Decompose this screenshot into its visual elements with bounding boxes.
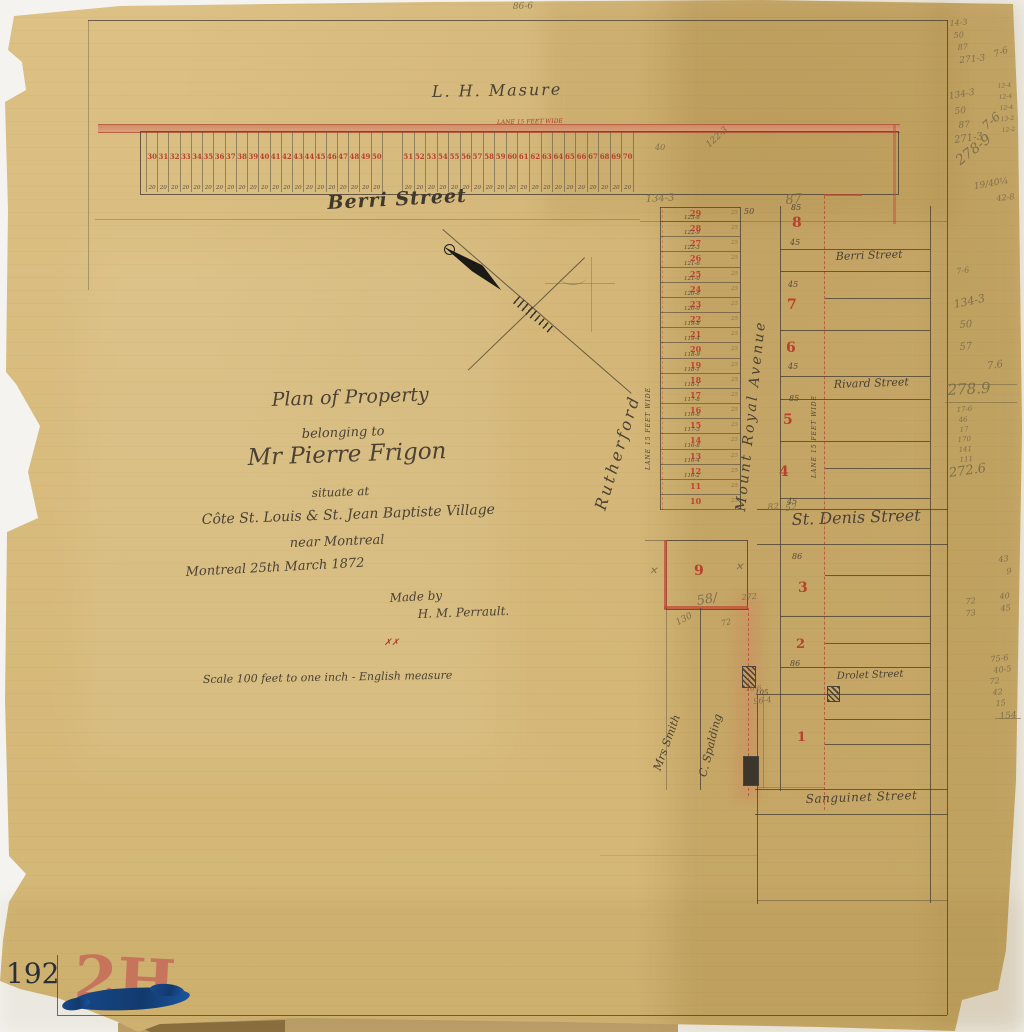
strip-lot-number: 45 [316, 152, 326, 161]
dim-86: 86 [790, 660, 800, 668]
strip-lot-width: 20 [530, 185, 541, 191]
block-line [825, 575, 930, 576]
column-lot-depth: 25 [731, 422, 738, 428]
strip-lot-63: 6320 [542, 132, 554, 192]
column-lot-dimension: 116-8 [684, 443, 700, 449]
margin-pencil-sum: 154 [999, 712, 1017, 722]
column-lot-12: 12116-225 [660, 465, 740, 480]
strip-lot-51: 5120 [402, 132, 415, 192]
strip-lot-number: 48 [349, 152, 359, 161]
strip-lot-width: 20 [316, 185, 326, 191]
strip-lot-58: 5820 [484, 132, 496, 192]
column-lot-19: 19118-125 [660, 359, 740, 374]
block-line [780, 330, 930, 331]
strip-lot-43: 4320 [293, 132, 304, 192]
block-line [780, 441, 930, 442]
title-line-1: Plan of Property [271, 386, 429, 410]
strip-lot-32: 3220 [169, 132, 180, 192]
pencil-82: 82 [767, 503, 779, 513]
pencil-16-6: 16-6 [746, 685, 762, 693]
strip-lot-56: 5620 [461, 132, 473, 192]
lot-3: 3 [798, 581, 808, 595]
strip-lot-37: 3720 [226, 132, 237, 192]
column-lot-dimension: 123-6 [684, 215, 700, 221]
pencil-272: 272 [741, 593, 757, 602]
strip-lot-width: 20 [259, 185, 269, 191]
strip-lot-number: 68 [599, 152, 610, 161]
margin-pencil: 42 [992, 688, 1003, 697]
margin-pencil: 57 [959, 342, 973, 353]
strip-lot-66: 6620 [576, 132, 588, 192]
strip-lot-number: 47 [338, 152, 348, 161]
dim-86: 86 [792, 553, 802, 561]
strip-lot-width: 20 [588, 185, 599, 191]
drolet-north-line [780, 667, 930, 668]
column-lot-26: 26121-625 [660, 252, 740, 267]
margin-pencil-sum: 278.9 [947, 381, 991, 398]
column-lot-11: 1125 [660, 480, 740, 495]
column-lot-dimension: 118-1 [684, 382, 700, 388]
column-lot-27: 27122-325 [660, 237, 740, 252]
column-lot-dimension: 122-3 [684, 245, 700, 251]
strip-lot-width: 20 [507, 185, 518, 191]
strip-lot-42: 4220 [282, 132, 293, 192]
strip-lot-number: 37 [226, 152, 236, 161]
margin-pencil: 170 [957, 436, 971, 444]
strip-lot-38: 3820 [237, 132, 248, 192]
column-lot-dimension: 119-8 [684, 321, 700, 327]
strip-lot-number: 70 [622, 152, 633, 161]
strip-lot-number: 34 [192, 152, 202, 161]
strip-lot-number: 43 [293, 152, 303, 161]
strip-lot-31: 3120 [158, 132, 169, 192]
column-lot-dimension: 122-9 [684, 230, 700, 236]
strip-lot-width: 20 [147, 185, 157, 191]
strip-lot-width: 20 [214, 185, 224, 191]
strip-lot-65: 6520 [565, 132, 577, 192]
frame-right [947, 20, 948, 1015]
strip-lot-69: 6920 [611, 132, 623, 192]
margin-pencil: 12-4 [998, 94, 1012, 101]
frame-bottom [58, 1015, 947, 1016]
column-lots: 29123-62528122-92527122-32526121-6252512… [660, 207, 740, 510]
dim-45: 45 [788, 363, 798, 371]
column-lot-18: 18118-125 [660, 374, 740, 389]
column-lot-25: 25121-025 [660, 268, 740, 283]
strip-lot-number: 67 [588, 152, 599, 161]
strip-lot-number: 46 [327, 152, 337, 161]
strip-lot-width: 20 [622, 185, 633, 191]
strip-lot-number: 44 [304, 152, 314, 161]
column-lot-depth: 25 [731, 271, 738, 277]
column-lot-10: 1025 [660, 495, 740, 510]
made-by-label: Made by [389, 589, 442, 604]
strip-lot-44: 4420 [304, 132, 315, 192]
sanguinet-south-line [755, 814, 948, 815]
column-lot-dimension: 118-1 [684, 367, 700, 373]
strip-lot-width: 20 [169, 185, 179, 191]
column-lot-dimension: 116-4 [684, 458, 700, 464]
lot1-west-line [757, 694, 758, 904]
strip-lot-60: 6020 [507, 132, 519, 192]
strip-lot-width: 20 [158, 185, 168, 191]
pencil-87-large: 87 [785, 193, 803, 207]
strip-lot-40: 4020 [259, 132, 270, 192]
strip-lot-number: 65 [565, 152, 576, 161]
lot9-red-left [664, 540, 667, 610]
pencil-52: 52 [785, 504, 797, 514]
title-line-6: near Montreal [290, 534, 385, 550]
lot-1: 1 [797, 731, 806, 744]
scanned-map-sheet: 3020312032203320342035203620372038203920… [0, 0, 1024, 1032]
strip-lot-36: 3620 [214, 132, 225, 192]
strip-lot-70: 7020 [622, 132, 634, 192]
column-lot-15: 15117-325 [660, 419, 740, 434]
column-lot-28: 28122-925 [660, 222, 740, 237]
red-check-marks: ✗✗ [384, 639, 399, 648]
strip-lot-width: 20 [565, 185, 576, 191]
strip-lot-width: 20 [226, 185, 236, 191]
margin-pencil: 43 [998, 555, 1009, 564]
block-line [825, 468, 930, 469]
pencil-40: 40 [655, 144, 665, 152]
lot-7: 7 [787, 298, 797, 312]
strip-lot-48: 4820 [349, 132, 360, 192]
column-lot-dimension: 119-4 [684, 336, 700, 342]
lot-4: 4 [779, 465, 789, 479]
strip-lot-width: 20 [192, 185, 202, 191]
strip-lot-width: 20 [271, 185, 281, 191]
east-lane-red-dash [824, 196, 825, 810]
owner-label-masure: L. H. Masure [432, 82, 563, 100]
column-lot-depth: 25 [731, 377, 738, 383]
strip-lot-width: 20 [599, 185, 610, 191]
strip-lot-50: 5020 [372, 132, 383, 192]
frame-left-upper [88, 20, 89, 290]
column-lot-20: 20118-925 [660, 343, 740, 358]
strip-lot-35: 3520 [203, 132, 214, 192]
column-lot-dimension: 120-0 [684, 306, 700, 312]
margin-pencil: 50 [954, 107, 966, 117]
berri-east-south-line [780, 271, 930, 272]
rivard-south-line [780, 399, 930, 400]
strip-lot-number: 57 [472, 152, 483, 161]
column-lot-dimension: 118-9 [684, 352, 700, 358]
margin-pencil: 13-2 [1000, 116, 1014, 123]
strip-lot-width: 20 [181, 185, 191, 191]
street-sanguinet: Sanguinet Street [806, 789, 918, 805]
strip-lots-b: 5120522053205420552056205720582059206020… [402, 132, 634, 192]
north-arrow-spiral [444, 244, 455, 255]
column-lot-dimension: 117-3 [684, 427, 700, 433]
strip-lot-width: 20 [472, 185, 483, 191]
block-line [825, 298, 930, 299]
column-lot-depth: 25 [731, 316, 738, 322]
strip-lot-width: 20 [203, 185, 213, 191]
strip-lot-57: 5720 [472, 132, 484, 192]
column-lot-number: 11 [690, 481, 701, 491]
margin-pencil: 9 [1006, 568, 1012, 576]
margin-pencil: 72 [989, 677, 1000, 686]
strip-lot-45: 4520 [316, 132, 327, 192]
strip-lot-54: 5420 [438, 132, 450, 192]
strip-lane-label: LANE 15 FEET WIDE [497, 119, 563, 126]
column-lane-label: LANE 15 FEET WIDE [646, 387, 652, 470]
drolet-south-line [757, 694, 930, 695]
strip-lot-width: 20 [518, 185, 529, 191]
column-lot-depth: 25 [731, 331, 738, 337]
column-lot-23: 23120-025 [660, 298, 740, 313]
strip-lot-number: 59 [495, 152, 506, 161]
lot1-inner-line [763, 694, 764, 788]
strip-lot-number: 66 [576, 152, 587, 161]
margin-pencil: 12-2 [1001, 127, 1015, 134]
column-lot-dimension: 116-6 [684, 412, 700, 418]
strip-lot-52: 5220 [415, 132, 427, 192]
dim-85: 85 [789, 395, 799, 403]
strip-lot-34: 3420 [192, 132, 203, 192]
strip-lot-number: 58 [484, 152, 495, 161]
column-lot-depth: 25 [731, 407, 738, 413]
strip-lot-number: 30 [147, 152, 157, 161]
lot-5: 5 [783, 413, 793, 427]
pencil-x-mark: ✕ [649, 567, 657, 577]
column-lot-dimension: 121-0 [684, 276, 700, 282]
strip-lot-number: 41 [271, 152, 281, 161]
strip-lot-width: 20 [293, 185, 303, 191]
lot-6: 6 [786, 341, 796, 355]
margin-pencil: 14-3 [949, 18, 968, 28]
pencil-134-3: 134-3 [645, 194, 674, 205]
strip-lot-53: 5320 [426, 132, 438, 192]
strip-lot-number: 50 [372, 152, 382, 161]
column-lot-21: 21119-425 [660, 328, 740, 343]
strip-lot-number: 35 [203, 152, 213, 161]
strip-lot-62: 6220 [530, 132, 542, 192]
strip-lot-width: 20 [304, 185, 314, 191]
east-lane-red-corner [824, 194, 862, 196]
strip-lot-number: 69 [611, 152, 622, 161]
column-lot-29: 29123-625 [660, 207, 740, 222]
column-lot-depth: 25 [731, 346, 738, 352]
dim-50: 50 [744, 208, 754, 216]
column-lot-depth: 25 [731, 225, 738, 231]
street-st-denis: St. Denis Street [791, 508, 920, 528]
pencil-sketch-curve [560, 270, 586, 285]
faint-pencil-line [600, 855, 757, 856]
strip-lot-number: 55 [449, 152, 460, 161]
block-line [780, 616, 930, 617]
column-lot-depth: 25 [731, 301, 738, 307]
building-footprint [827, 686, 840, 702]
title-line-4: situate at [312, 485, 370, 499]
strip-lot-number: 40 [259, 152, 269, 161]
building-footprint [743, 756, 759, 786]
strip-lot-width: 20 [495, 185, 506, 191]
dim-45: 45 [790, 239, 800, 247]
east-lane-label: LANE 15 FEET WIDE [812, 395, 818, 478]
pencil-x-mark: ✕ [735, 563, 743, 573]
margin-pencil: 46 [958, 416, 967, 424]
column-lot-24: 24120-625 [660, 283, 740, 298]
column-lot-13: 13116-425 [660, 450, 740, 465]
column-lot-depth: 25 [731, 240, 738, 246]
strip-lot-39: 3920 [248, 132, 259, 192]
strip-lot-number: 36 [214, 152, 224, 161]
strip-lot-number: 31 [158, 152, 168, 161]
column-lot-depth: 25 [731, 255, 738, 261]
strip-lots-a: 3020312032203320342035203620372038203920… [146, 132, 383, 192]
strip-lot-width: 20 [327, 185, 337, 191]
title-line-2: belonging to [302, 425, 385, 441]
street-berri-east: Berri Street [836, 249, 903, 262]
margin-pencil: 12-4 [997, 83, 1011, 90]
margin-pencil: 12-4 [999, 105, 1013, 112]
street-rivard: Rivard Street [834, 376, 909, 390]
column-lot-depth: 25 [731, 286, 738, 292]
strip-lot-width: 20 [484, 185, 495, 191]
strip-lot-width: 20 [576, 185, 587, 191]
strip-lot-number: 56 [461, 152, 472, 161]
column-lot-dimension: 117-8 [684, 397, 700, 403]
strip-lot-number: 32 [169, 152, 179, 161]
strip-lot-61: 6120 [518, 132, 530, 192]
strip-lot-number: 60 [507, 152, 518, 161]
strip-lot-width: 20 [553, 185, 564, 191]
margin-pencil: 45 [1000, 604, 1011, 613]
margin-pencil: 141 [958, 446, 972, 454]
margin-pencil: 50 [959, 320, 973, 331]
strip-lot-64: 6420 [553, 132, 565, 192]
lot-9: 9 [694, 564, 704, 578]
berri-street-south-line [95, 219, 640, 220]
column-lot-16: 16116-625 [660, 404, 740, 419]
lot-2: 2 [796, 638, 805, 651]
column-lot-dimension: 116-2 [684, 473, 700, 479]
column-lot-dimension: 120-6 [684, 291, 700, 297]
sum-underline [945, 402, 1017, 403]
strip-lot-number: 64 [553, 152, 564, 161]
pencil-58: 58/ [696, 592, 719, 608]
strip-lot-46: 4620 [327, 132, 338, 192]
pencil-sketch-line [591, 257, 592, 332]
margin-pencil: 72 [965, 597, 976, 606]
strip-lot-width: 20 [611, 185, 622, 191]
stdenis-south-line [757, 544, 948, 545]
strip-lot-55: 5520 [449, 132, 461, 192]
column-lot-depth: 25 [731, 362, 738, 368]
strip-lot-width: 20 [248, 185, 258, 191]
strip-lot-67: 6720 [588, 132, 600, 192]
margin-pencil: 73 [965, 609, 976, 618]
column-lot-14: 14116-825 [660, 434, 740, 449]
strip-lot-number: 33 [181, 152, 191, 161]
strip-lot-number: 42 [282, 152, 292, 161]
margin-pencil: 40 [999, 592, 1010, 601]
block-line [825, 643, 930, 644]
east-lots-east-line [930, 206, 931, 903]
strip-lot-68: 6820 [599, 132, 611, 192]
strip-lot-number: 62 [530, 152, 541, 161]
maker-name: H. M. Perrault. [418, 605, 510, 620]
lot-8: 8 [792, 216, 802, 230]
catalog-number: 192 [6, 960, 59, 988]
margin-pencil: 87 [958, 121, 970, 131]
block-line [825, 744, 930, 745]
strip-lot-30: 3020 [146, 132, 158, 192]
strip-lot-number: 38 [237, 152, 247, 161]
strip-lot-width: 20 [237, 185, 247, 191]
pencil-top-edge: 86-6 [513, 2, 534, 12]
strip-lot-49: 4920 [360, 132, 371, 192]
strip-lot-width: 20 [542, 185, 553, 191]
margin-pencil: 87 [957, 43, 968, 52]
strip-lot-number: 39 [248, 152, 258, 161]
column-lot-17: 17117-825 [660, 389, 740, 404]
south-block-line [757, 900, 948, 901]
margin-pencil: 50 [953, 31, 964, 40]
strip-lot-number: 54 [438, 152, 449, 161]
column-lot-depth: 25 [731, 453, 738, 459]
column-lot-22: 22119-825 [660, 313, 740, 328]
strip-lot-33: 3320 [181, 132, 192, 192]
frame-top [88, 20, 948, 21]
strip-lot-number: 51 [403, 152, 414, 161]
strip-lot-number: 49 [360, 152, 370, 161]
column-lot-number: 10 [690, 496, 701, 506]
margin-pencil: 17 [959, 426, 968, 434]
column-lot-dimension: 121-6 [684, 261, 700, 267]
strip-lot-number: 53 [426, 152, 437, 161]
strip-right-red-edge [893, 124, 896, 224]
strip-lot-59: 5920 [495, 132, 507, 192]
margin-pencil: 17-6 [956, 406, 972, 414]
strip-lot-41: 4120 [271, 132, 282, 192]
dim-45: 45 [788, 281, 798, 289]
block-line [825, 719, 930, 720]
strip-lot-number: 61 [518, 152, 529, 161]
strip-lot-width: 20 [282, 185, 292, 191]
strip-lot-47: 4720 [338, 132, 349, 192]
column-lot-depth: 25 [731, 437, 738, 443]
column-lot-depth: 25 [731, 392, 738, 398]
margin-pencil: 15 [995, 699, 1006, 708]
strip-lot-number: 52 [415, 152, 426, 161]
strip-lot-number: 63 [542, 152, 553, 161]
block-line [780, 498, 930, 499]
column-lot-depth: 25 [731, 210, 738, 216]
